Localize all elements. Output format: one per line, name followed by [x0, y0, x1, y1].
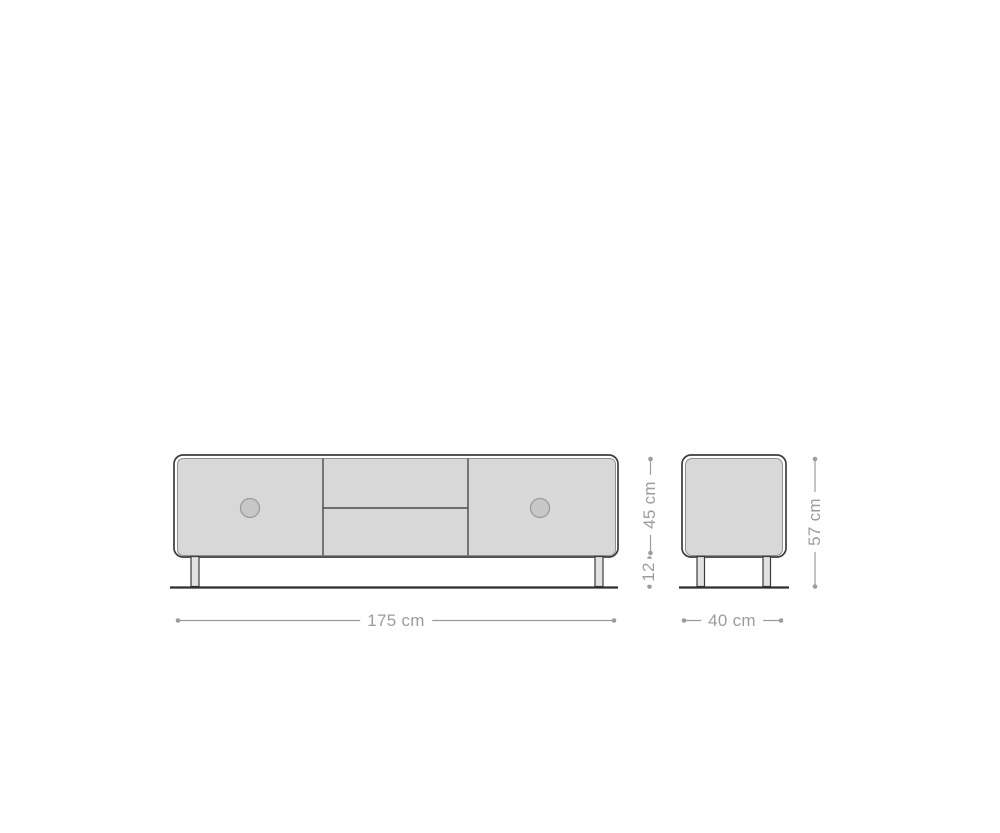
- dimension-diagram: 175 cm 40 cm 45 cm 12 57 cm: [0, 0, 1000, 833]
- left-door-handle: [241, 499, 260, 518]
- depth-dimension-dot-left: [682, 618, 687, 623]
- side-left-leg: [697, 557, 705, 587]
- right-door-handle: [531, 499, 550, 518]
- front-view: [170, 455, 618, 588]
- front-right-leg: [595, 557, 603, 587]
- top-drawer-panel: [323, 459, 468, 509]
- body-height-dimension-dot-top: [648, 457, 653, 462]
- bottom-drawer-panel: [323, 508, 468, 556]
- side-body-panel: [686, 459, 783, 556]
- total-height-dimension-label: 57 cm: [805, 492, 825, 552]
- side-view: [679, 455, 789, 588]
- body-height-dimension-label: 45 cm: [640, 475, 660, 535]
- total-height-dimension-dot-top: [813, 457, 818, 462]
- furniture-drawing: [0, 0, 1000, 833]
- side-right-leg: [763, 557, 771, 587]
- leg-height-dimension-label: 12: [639, 559, 659, 585]
- depth-dimension-dot-right: [779, 618, 784, 623]
- front-left-leg: [191, 557, 199, 587]
- body-height-dimension-dot-bottom: [648, 551, 653, 556]
- leg-height-dimension-dot-bottom: [647, 584, 652, 589]
- width-dimension-dot-right: [612, 618, 617, 623]
- width-dimension-label: 175 cm: [360, 611, 432, 631]
- depth-dimension-label: 40 cm: [701, 611, 763, 631]
- total-height-dimension-dot-bottom: [813, 584, 818, 589]
- width-dimension-dot-left: [176, 618, 181, 623]
